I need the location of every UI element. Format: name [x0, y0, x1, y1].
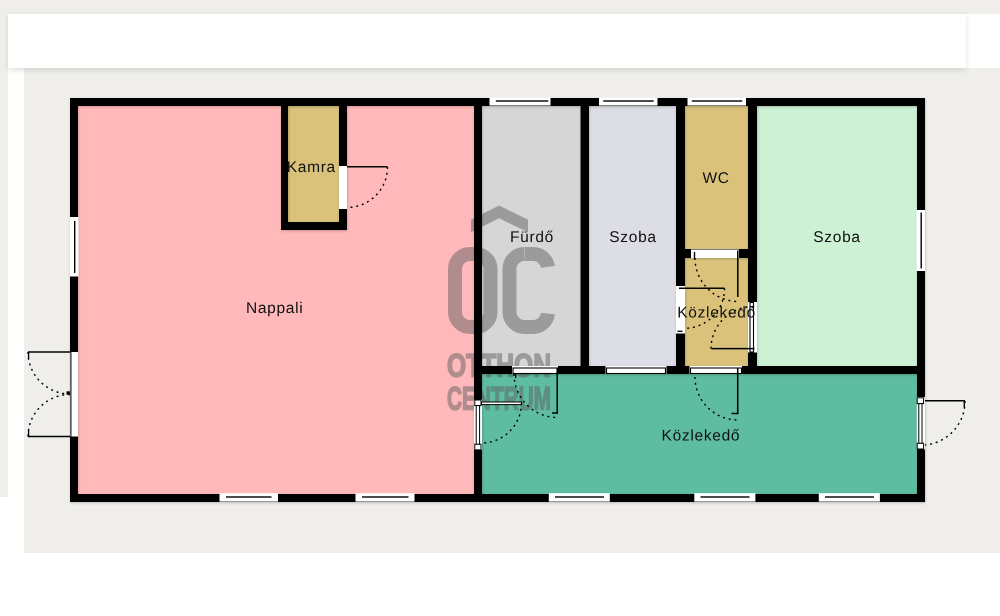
svg-text:Szoba: Szoba: [609, 229, 656, 246]
svg-text:Kamra: Kamra: [287, 159, 336, 176]
svg-text:OTTHON: OTTHON: [447, 348, 551, 384]
svg-text:Szoba: Szoba: [813, 229, 860, 246]
svg-text:Nappali: Nappali: [246, 300, 303, 317]
svg-text:WC: WC: [702, 170, 729, 187]
svg-text:CENTRUM: CENTRUM: [447, 381, 551, 417]
svg-text:Fürdő: Fürdő: [510, 229, 554, 246]
svg-text:Közlekedő: Közlekedő: [677, 305, 756, 322]
svg-text:Közlekedő: Közlekedő: [662, 428, 741, 445]
